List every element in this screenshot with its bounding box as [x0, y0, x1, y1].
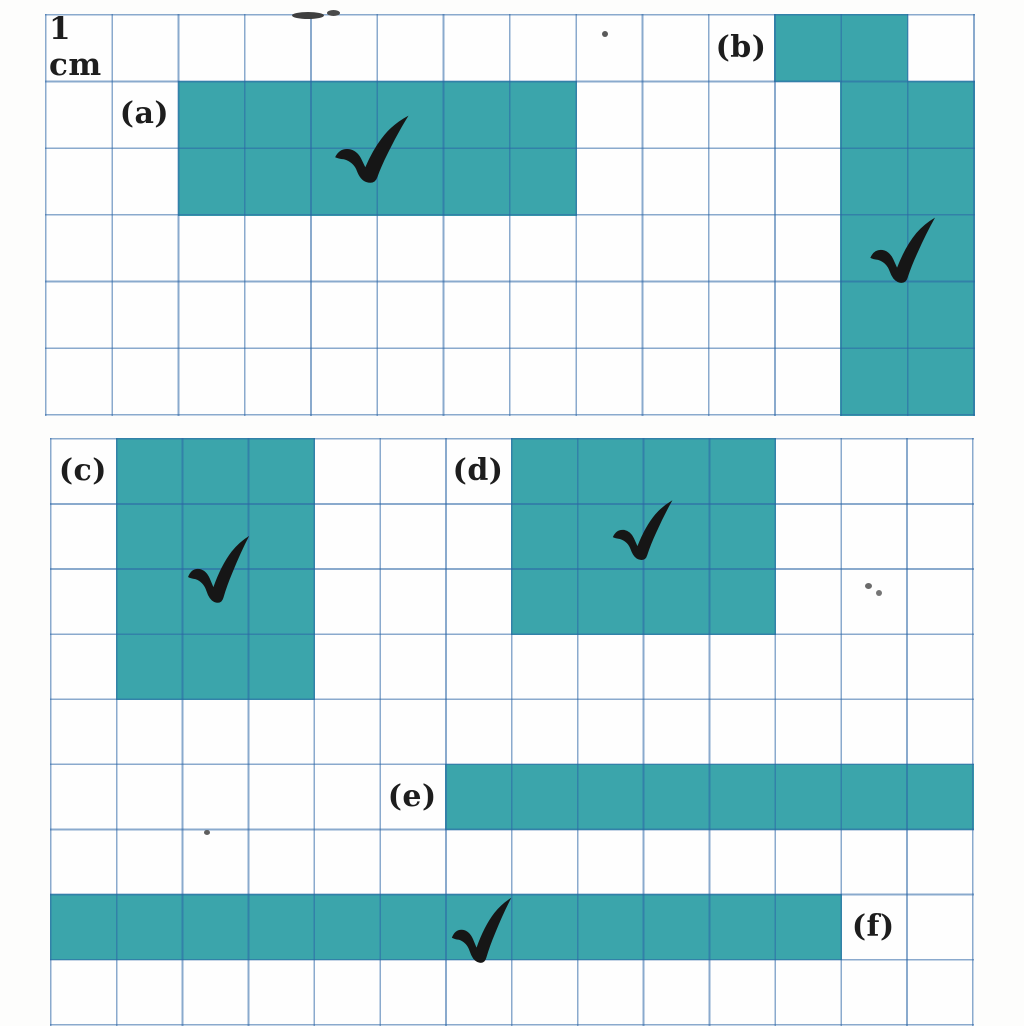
shape-label-b: (b): [708, 14, 774, 81]
shape-label-f: (f): [840, 894, 906, 959]
shape-label-e: (e): [379, 764, 445, 829]
shape-b-shaded-region: [840, 81, 974, 416]
grid-top: 1 cm(a)(b): [45, 14, 975, 416]
shape-d-shaded-region: [511, 438, 776, 635]
shape-a-shaded-region: [178, 81, 577, 216]
shape-label-c: (c): [50, 438, 116, 503]
shape-e-shaded-region: [445, 764, 974, 831]
shape-b-shaded-region: [774, 14, 908, 82]
shape-label-a: (a): [111, 81, 177, 148]
shape-label-d: (d): [445, 438, 511, 503]
unit-label: 1 cm: [45, 14, 111, 81]
worksheet-page: 1 cm(a)(b) (c)(d)(e)(f): [0, 0, 1024, 1024]
shape-c-shaded-region: [116, 438, 315, 700]
grid-bottom: (c)(d)(e)(f): [50, 438, 974, 1026]
shape-f-shaded-region: [50, 894, 842, 961]
